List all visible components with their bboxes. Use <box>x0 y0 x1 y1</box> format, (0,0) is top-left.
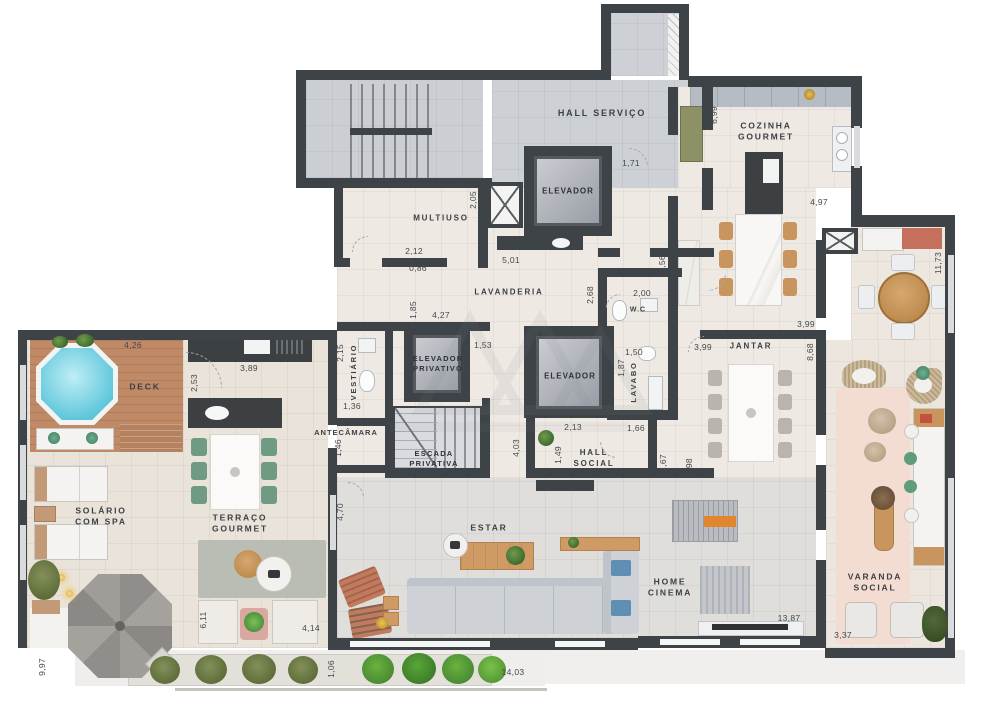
floor-lamp <box>376 617 388 629</box>
cinema-recliner-throw <box>611 560 631 576</box>
dim-label: 1,06 <box>326 660 336 678</box>
sofa-main <box>407 578 607 634</box>
island-chair <box>783 250 797 268</box>
dim-label: 3,99 <box>797 319 815 329</box>
watermark-logo <box>360 300 660 440</box>
bar-stool <box>904 452 917 465</box>
cafe-bench-red <box>902 228 942 249</box>
dim-label: 1,67 <box>658 454 668 472</box>
cinema-rug <box>700 566 750 614</box>
gourmet-island <box>188 398 282 428</box>
terrace-planter <box>32 600 60 614</box>
dim-label: 1,49 <box>553 446 563 464</box>
dim-label: 1,71 <box>622 158 640 168</box>
room-label-vestiario: VESTIÁRIO <box>349 344 359 401</box>
room-label-escada-privativa: ESCADA PRIVATIVA <box>409 449 458 469</box>
terrace-chair <box>191 486 207 504</box>
cafe-bench-white <box>862 228 904 251</box>
cafe-chair <box>891 254 915 271</box>
lounge-side-table <box>383 596 399 610</box>
coffee-table-plant <box>506 546 525 565</box>
terrace-round-table-white <box>256 556 292 592</box>
grill <box>276 340 304 354</box>
terrace-chair <box>261 462 277 480</box>
dim-label: 4,14 <box>302 623 320 633</box>
varanda-pouf <box>868 408 896 434</box>
shaft-x-2 <box>822 228 858 254</box>
cafe-chair <box>858 285 875 309</box>
dim-label: 2,12 <box>405 246 423 256</box>
dim-label: 4,70 <box>335 503 345 521</box>
bar-stool <box>904 480 917 493</box>
room-label-elevador-servico: ELEVADOR <box>542 187 594 198</box>
dim-label: 9,97 <box>37 658 47 676</box>
cinema-orange-drawer <box>704 516 736 527</box>
terrace-chair <box>191 462 207 480</box>
terrace-chair <box>191 438 207 456</box>
hall-social-console <box>536 480 594 491</box>
rattan-chair <box>842 360 886 388</box>
service-stairs-landing <box>350 128 432 135</box>
island-chair <box>719 222 733 240</box>
dim-label: 2,00 <box>633 288 651 298</box>
dim-label: 6,99 <box>709 106 719 124</box>
dim-label: 11,73 <box>933 252 943 274</box>
dim-label: 14,03 <box>502 667 525 677</box>
console-plant <box>568 537 579 548</box>
pool-plant <box>76 334 94 347</box>
laundry-sink <box>552 238 570 248</box>
kitchen-counter-top <box>690 87 851 107</box>
varanda-armchair <box>890 602 924 638</box>
dim-label: 8,68 <box>805 343 815 361</box>
service-stairs <box>350 84 432 130</box>
dining-chair <box>778 394 792 410</box>
terrace-bush <box>28 560 60 600</box>
dining-chair <box>708 418 722 434</box>
terrace-bench <box>272 600 318 644</box>
rattan-chair <box>906 368 942 404</box>
path-light <box>66 590 73 597</box>
dim-label: 3,99 <box>694 342 712 352</box>
patio-corner <box>30 608 72 648</box>
kitchen-marble-island <box>735 214 782 306</box>
laundry-counter <box>497 236 583 250</box>
dining-chair <box>778 418 792 434</box>
dim-label: 2,15 <box>335 344 345 362</box>
dim-label: 6,11 <box>198 611 208 628</box>
cooktop <box>244 340 270 354</box>
dining-chair <box>708 394 722 410</box>
room-label-solario: SOLÁRIO COM SPA <box>75 506 127 529</box>
dim-label: 0,86 <box>409 263 427 273</box>
room-label-elevador-social: ELEVADOR <box>544 372 596 383</box>
room-label-home-cinema: HOME CINEMA <box>648 577 692 600</box>
island-chair <box>719 250 733 268</box>
deck-steps <box>120 424 182 452</box>
bench-towel-plant <box>48 432 60 444</box>
room-label-estar: ESTAR <box>470 522 507 533</box>
dim-label: 2,05 <box>468 191 478 209</box>
room-label-hall-servico: HALL SERVIÇO <box>558 107 646 119</box>
planter-edge-line <box>175 688 547 691</box>
kitchen-sink-counter <box>832 126 852 172</box>
shaft-x-1 <box>487 182 523 228</box>
spa-pool <box>41 348 113 420</box>
dining-chair <box>778 370 792 386</box>
kitchen-gold-fixture <box>804 89 815 100</box>
floor-plan: HALL SERVIÇO ELEVADOR MULTIUSO LAVANDERI… <box>0 0 1000 706</box>
pool-plant <box>52 336 68 348</box>
kitchen-island-cooktop <box>745 152 783 214</box>
dim-label: 4,03 <box>511 439 521 457</box>
terrace-chair <box>261 486 277 504</box>
room-label-elevador-privativo: ELEVADOR PRIVATIVO <box>413 354 464 374</box>
room-label-jantar: JANTAR <box>730 342 773 353</box>
dim-label: 13,87 <box>778 613 801 623</box>
bar-stool <box>904 424 919 439</box>
island-chair <box>783 278 797 296</box>
tv-screen <box>712 624 788 630</box>
room-label-lavanderia: LAVANDERIA <box>474 288 543 299</box>
room-label-cozinha: COZINHA GOURMET <box>738 121 794 144</box>
dim-label: 4,97 <box>810 197 828 207</box>
pouf-plant <box>244 612 264 632</box>
dim-label: 3,37 <box>834 630 852 640</box>
varanda-pouf <box>864 442 886 462</box>
side-round-table <box>443 533 468 558</box>
dining-table <box>728 364 774 462</box>
dining-chair <box>778 442 792 458</box>
dining-chair <box>708 370 722 386</box>
dim-label: 2,53 <box>189 374 199 392</box>
bench-towel-plant <box>86 432 98 444</box>
dim-label: 1,36 <box>343 401 361 411</box>
dim-label: 3,98 <box>684 458 694 476</box>
dining-chair <box>708 442 722 458</box>
terrace-chair <box>261 438 277 456</box>
kitchen-fridge <box>680 106 703 162</box>
dim-label: 3,89 <box>240 363 258 373</box>
room-label-multiuso: MULTIUSO <box>413 214 469 225</box>
bar-stool <box>904 508 919 523</box>
dim-label: 1,46 <box>333 439 343 457</box>
dim-label: 4,26 <box>124 340 142 350</box>
sun-lounger <box>34 466 108 502</box>
shaft-brace <box>668 14 679 76</box>
terrace-table <box>210 434 260 510</box>
varanda-plant <box>922 606 948 642</box>
cinema-recliner-throw <box>611 600 631 616</box>
island-chair <box>783 222 797 240</box>
sun-lounger <box>34 524 108 560</box>
dim-label: 5,01 <box>502 255 520 265</box>
room-label-hall-social: HALL SOCIAL <box>573 448 614 470</box>
tall-table-plant <box>871 486 895 510</box>
dim-label: 3,56 <box>657 255 667 273</box>
cafe-round-table <box>878 272 930 324</box>
room-label-terraco: TERRAÇO GOURMET <box>212 513 268 536</box>
service-stairs-lower <box>350 135 432 178</box>
room-label-deck: DECK <box>129 381 160 392</box>
cafe-chair <box>891 323 915 340</box>
room-label-varanda: VARANDA SOCIAL <box>848 572 902 595</box>
lounger-side-table <box>34 506 56 522</box>
